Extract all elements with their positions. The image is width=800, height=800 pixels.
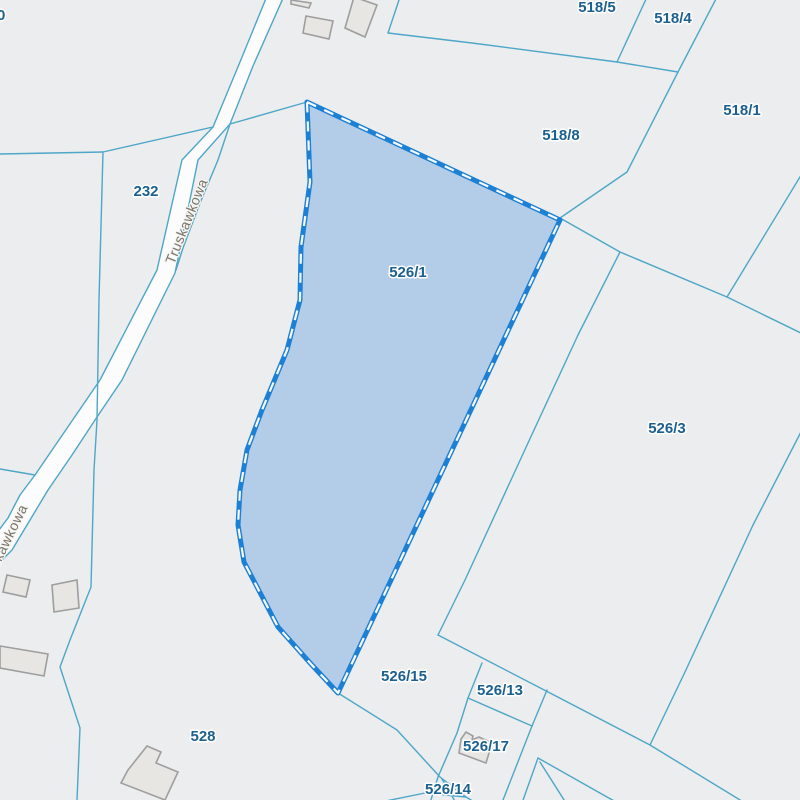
parcel-label-526-1: 526/1 [389, 264, 427, 281]
parcel-label-526-14: 526/14 [425, 781, 472, 798]
parcel-label-526-17: 526/17 [463, 738, 509, 755]
cadastral-map-svg[interactable]: 0 518/5 518/4 518/1 518/8 232 526/1 526/… [0, 0, 800, 800]
building [52, 580, 79, 612]
parcel-label-518-5: 518/5 [578, 0, 616, 16]
parcel-label-0: 0 [0, 7, 5, 24]
parcel-label-518-4: 518/4 [654, 10, 692, 27]
map-canvas[interactable]: 0 518/5 518/4 518/1 518/8 232 526/1 526/… [0, 0, 800, 800]
parcel-label-518-1: 518/1 [723, 102, 761, 119]
parcel-label-526-3: 526/3 [648, 420, 686, 437]
parcel-label-518-8: 518/8 [542, 127, 580, 144]
parcel-label-528: 528 [190, 728, 215, 745]
parcel-label-232: 232 [133, 183, 158, 200]
parcel-label-526-15: 526/15 [381, 668, 427, 685]
parcel-label-526-13: 526/13 [477, 682, 523, 699]
